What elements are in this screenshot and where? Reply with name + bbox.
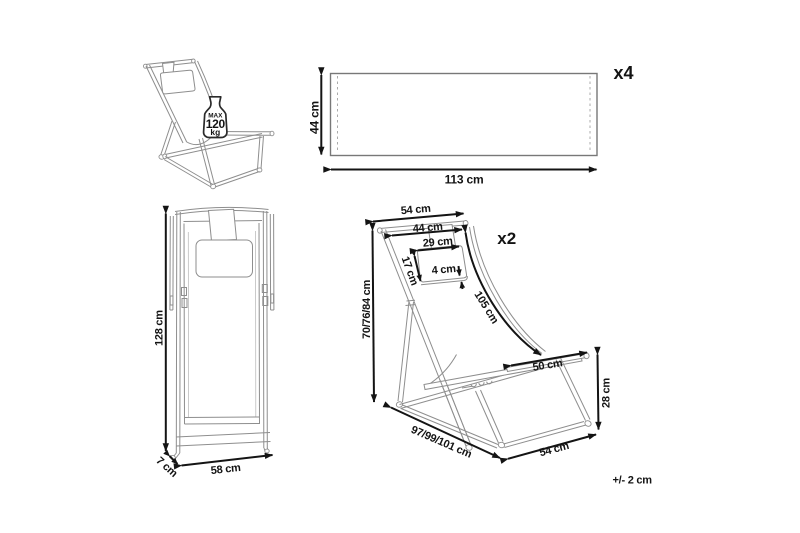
svg-text:x2: x2: [497, 229, 516, 248]
svg-text:28 cm: 28 cm: [601, 378, 613, 408]
svg-text:4 cm: 4 cm: [431, 263, 456, 277]
svg-text:x4: x4: [613, 63, 633, 83]
svg-text:+/- 2 cm: +/- 2 cm: [613, 475, 653, 487]
svg-text:113 cm: 113 cm: [445, 173, 484, 187]
svg-text:70/76/84 cm: 70/76/84 cm: [361, 280, 373, 339]
svg-text:44 cm: 44 cm: [308, 101, 322, 134]
svg-text:128 cm: 128 cm: [154, 310, 166, 346]
svg-text:kg: kg: [210, 127, 220, 137]
